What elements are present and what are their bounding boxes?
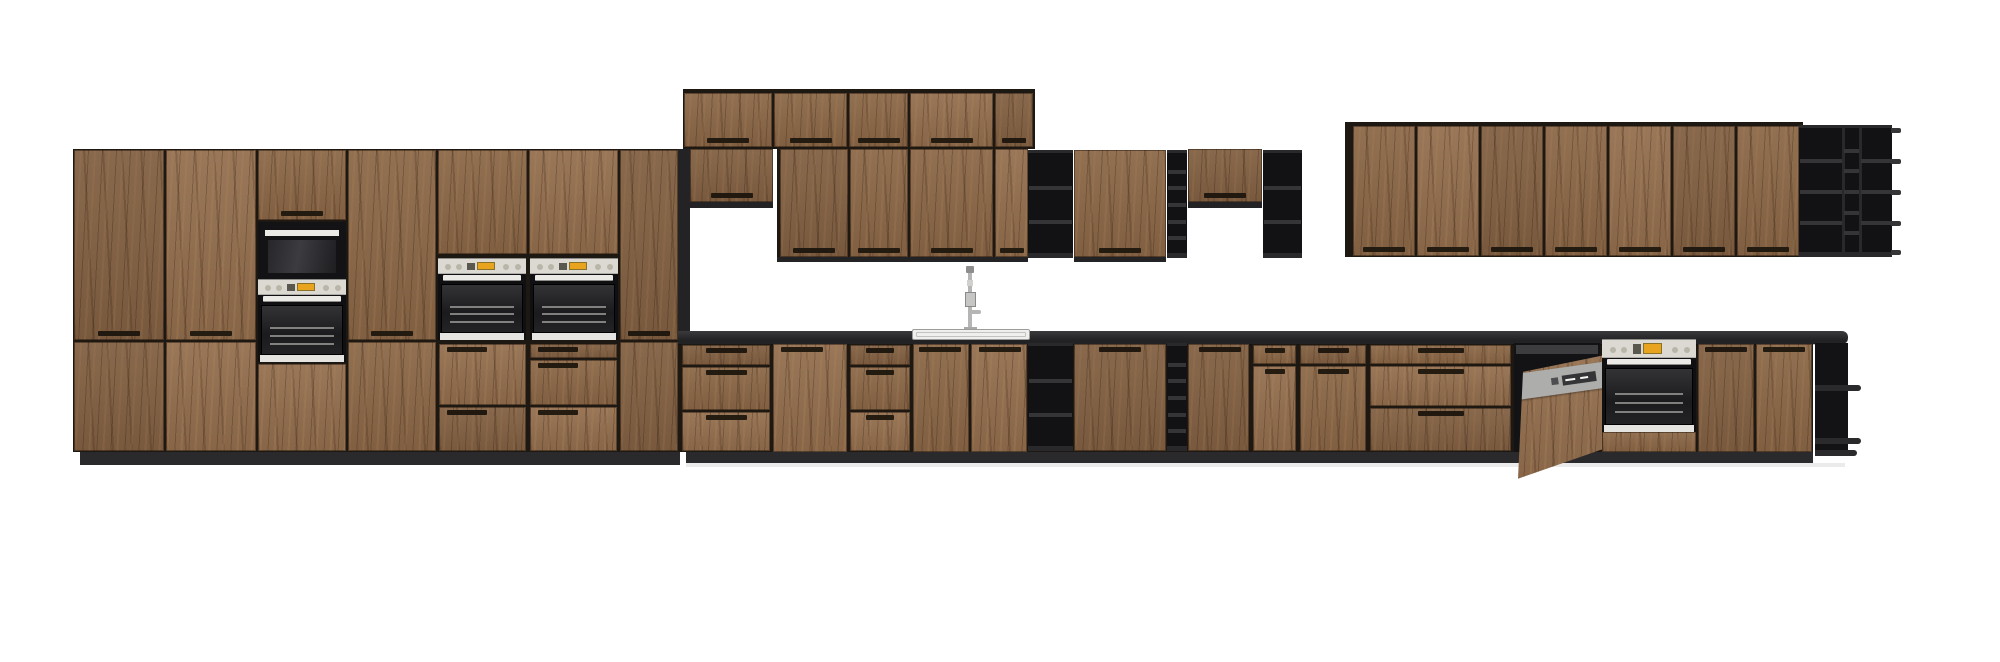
door-handle: [790, 138, 832, 143]
shelf-face: [1168, 170, 1186, 174]
oven-bottom-trim: [260, 355, 344, 362]
shelf-lip: [1815, 450, 1857, 456]
door-handle: [1418, 348, 1464, 353]
upper-cabinet-door[interactable]: [1417, 126, 1479, 256]
base-drawer-unit[interactable]: [1369, 344, 1512, 452]
compact-oven-control-panel: [258, 279, 346, 295]
upper-cabinet-door[interactable]: [1545, 126, 1607, 256]
shelf-face: [1800, 159, 1842, 163]
control-button: [1633, 344, 1641, 354]
door-handle: [1763, 347, 1805, 352]
upper-cabinet-door[interactable]: [774, 93, 847, 147]
shelf-face: [1800, 190, 1842, 194]
shelf-face: [1168, 220, 1186, 224]
upper-cabinet-door[interactable]: [995, 93, 1033, 147]
shelf-lip: [1891, 250, 1901, 255]
base-drawer-unit[interactable]: [681, 344, 771, 452]
shelf-lip: [1891, 221, 1901, 226]
control-button: [559, 263, 567, 270]
upper-cabinet-door[interactable]: [849, 93, 908, 147]
base-cabinet-door[interactable]: [1756, 344, 1812, 452]
oven-door-glass: [261, 305, 343, 355]
shelf-frame-top: [1028, 150, 1073, 153]
dishwasher-display: [1562, 371, 1597, 386]
shelf-face: [1800, 221, 1842, 225]
sink-base-door[interactable]: [913, 344, 969, 452]
door-handle: [931, 248, 973, 253]
upper-cabinet-door[interactable]: [1673, 126, 1735, 256]
shelf-frame-top: [1028, 343, 1073, 346]
oven-rack: [450, 321, 514, 323]
microwave-glass: [268, 240, 336, 273]
drawer-front[interactable]: [1300, 366, 1366, 451]
door-handle: [793, 248, 835, 253]
door-handle: [1002, 138, 1026, 143]
shelf-frame-bottom: [1799, 252, 1892, 257]
door-handle: [858, 138, 900, 143]
door-handle: [858, 248, 900, 253]
door-handle: [706, 370, 747, 375]
oven-door-glass: [441, 284, 523, 333]
door-handle: [1000, 248, 1024, 253]
door-handle: [1705, 347, 1747, 352]
shelf-frame-bottom: [1167, 253, 1187, 258]
shelf-face: [1844, 231, 1859, 235]
pantry-door-lower[interactable]: [348, 342, 436, 451]
shelf-face: [1264, 186, 1301, 190]
oven-display: [1643, 343, 1662, 354]
shelf-frame-top: [1167, 343, 1187, 346]
wall-oven-left[interactable]: [438, 274, 526, 340]
door-handle: [1363, 247, 1405, 252]
shelf-frame-bottom: [1263, 253, 1302, 258]
drawer-front[interactable]: [1253, 345, 1296, 364]
oven-display: [569, 262, 587, 270]
upper-cabinet-door[interactable]: [910, 93, 993, 147]
door-handle: [706, 415, 747, 420]
drawer-front[interactable]: [530, 344, 617, 358]
oven-control-panel: [1602, 339, 1696, 358]
appliance-column-bottom-door[interactable]: [258, 364, 346, 451]
oven-column-top-door[interactable]: [529, 150, 618, 254]
control-button: [467, 263, 475, 270]
upper-cabinet-door[interactable]: [995, 149, 1028, 257]
shelf-face: [1029, 413, 1072, 417]
upper-cabinet-door[interactable]: [1353, 126, 1415, 256]
drawer-over-door-unit[interactable]: [1299, 344, 1367, 452]
pantry-door[interactable]: [74, 150, 164, 340]
oven-handle-bar: [263, 296, 341, 302]
drawer-front[interactable]: [850, 345, 910, 365]
tall-run-side-panel: [678, 149, 690, 343]
dishwasher-tub-edge: [1516, 345, 1598, 354]
upper-cabinet-door[interactable]: [780, 149, 848, 257]
control-knob-icon: [323, 285, 329, 291]
drawer-front[interactable]: [682, 412, 770, 451]
control-knob-icon: [1684, 347, 1690, 353]
oven-base-drawers[interactable]: [438, 343, 527, 452]
shelf-face: [1168, 203, 1186, 207]
control-knob-icon: [335, 285, 341, 291]
door-handle: [447, 410, 487, 415]
shelf-face: [1029, 220, 1072, 224]
drawer-front[interactable]: [1370, 366, 1511, 406]
base-cabinet-door[interactable]: [1074, 344, 1166, 451]
dishwasher-display-text: [1565, 378, 1575, 381]
door-handle: [538, 347, 578, 352]
door-handle: [706, 348, 747, 353]
sink-base-door[interactable]: [971, 344, 1027, 452]
dishwasher-button: [1551, 377, 1559, 385]
pantry-door-lower[interactable]: [74, 342, 164, 451]
sink-basin-line: [916, 332, 1026, 337]
door-handle: [1265, 369, 1285, 374]
door-handle: [931, 138, 973, 143]
upper-cabinet-door[interactable]: [910, 149, 993, 257]
drawer-front[interactable]: [439, 344, 526, 405]
door-handle: [1318, 369, 1349, 374]
door-handle: [1683, 247, 1725, 252]
shelf-frame-top: [1799, 125, 1892, 128]
oven-rack: [542, 321, 606, 323]
wine-shelf-column[interactable]: [1167, 150, 1187, 258]
dishwasher-display-text: [1580, 376, 1588, 379]
oven-door-glass: [1605, 368, 1693, 425]
pantry-door[interactable]: [166, 150, 256, 340]
oven-handle-bar: [535, 275, 613, 281]
shelf-face: [1861, 221, 1891, 225]
door-handle: [866, 415, 894, 420]
door-handle: [190, 331, 232, 336]
door-handle: [1099, 248, 1141, 253]
open-shelf-unit[interactable]: [1028, 150, 1073, 258]
faucet-body: [965, 292, 976, 307]
dishwasher-semi-integrated[interactable]: [1514, 343, 1600, 452]
door-handle: [1099, 347, 1141, 352]
base-cabinet-door[interactable]: [1188, 344, 1249, 451]
faucet-top-cap: [966, 266, 974, 273]
oven-rack: [270, 343, 334, 345]
upper-cabinet-door[interactable]: [1609, 126, 1671, 256]
shelf-face: [1844, 190, 1859, 194]
pantry-door-lower[interactable]: [620, 342, 678, 451]
oven-base-drawers[interactable]: [529, 343, 618, 452]
wall-oven-control-panel: [438, 258, 526, 274]
control-knob-icon: [537, 264, 543, 270]
pantry-door[interactable]: [348, 150, 436, 340]
door-handle: [866, 348, 894, 353]
shelf-frame-top: [1167, 150, 1187, 153]
shelf-face: [1861, 159, 1891, 163]
door-handle: [1427, 247, 1469, 252]
shelf-face: [1029, 379, 1072, 383]
control-knob-icon: [1621, 347, 1627, 353]
door-handle: [98, 331, 140, 336]
upper-cabinet-door-short[interactable]: [1188, 149, 1262, 202]
control-knob-icon: [1610, 347, 1616, 353]
door-handle: [711, 193, 753, 198]
control-knob-icon: [445, 264, 451, 270]
shelf-lip: [1815, 438, 1861, 444]
upper-cabinet-door[interactable]: [1481, 126, 1543, 256]
appliance-column-top-door[interactable]: [258, 150, 346, 220]
toe-kick-left: [80, 452, 680, 465]
cabinet-bottom-edge: [690, 202, 773, 208]
door-handle: [447, 347, 487, 352]
door-handle: [538, 410, 578, 415]
door-handle: [1204, 193, 1246, 198]
shelf-face: [1168, 396, 1186, 400]
drawer-front[interactable]: [530, 360, 617, 405]
shelf-face: [1168, 413, 1186, 417]
shelf-face: [1168, 236, 1186, 240]
drawer-front[interactable]: [530, 407, 617, 451]
oven-handle-bar: [1607, 359, 1691, 365]
control-knob-icon: [503, 264, 509, 270]
drawer-front[interactable]: [850, 412, 910, 451]
control-knob-icon: [456, 264, 462, 270]
upper-cabinet-door[interactable]: [684, 93, 772, 147]
drawer-front[interactable]: [850, 367, 910, 410]
oven-bottom-trim: [440, 333, 524, 340]
oven-door-glass: [533, 284, 615, 333]
wine-shelf-column[interactable]: [1167, 343, 1187, 451]
door-handle: [1418, 369, 1464, 374]
oven-rack: [542, 306, 606, 308]
oven-rack: [542, 313, 606, 315]
door-handle: [1747, 247, 1789, 252]
base-cabinet-door[interactable]: [773, 344, 847, 452]
door-handle: [628, 331, 670, 336]
shelf-face: [1844, 169, 1859, 173]
door-handle: [1265, 348, 1285, 353]
wall-oven-right[interactable]: [530, 274, 618, 340]
cabinet-bottom-edge: [777, 257, 1028, 262]
door-handle: [919, 347, 961, 352]
control-knob-icon: [515, 264, 521, 270]
oven-rack: [1615, 411, 1684, 413]
oven-rack: [450, 313, 514, 315]
oven-rack: [1615, 393, 1684, 395]
shelf-face: [1168, 363, 1186, 367]
faucet-spout: [971, 310, 981, 314]
shelf-face: [1168, 429, 1186, 433]
toe-kick-right: [686, 452, 1813, 463]
floor-shadow: [686, 463, 1845, 467]
oven-display: [297, 283, 315, 291]
shelf-face: [1264, 220, 1301, 224]
base-drawer-unit[interactable]: [849, 344, 911, 452]
sink-rim[interactable]: [912, 329, 1030, 340]
cabinet-bottom-edge: [1074, 257, 1166, 262]
faucet-joint: [967, 280, 973, 286]
oven-column-top-door[interactable]: [438, 150, 527, 254]
shelf-face: [1168, 186, 1186, 190]
oven-base-filler[interactable]: [1602, 432, 1696, 452]
drawer-front[interactable]: [439, 407, 526, 451]
control-knob-icon: [1672, 347, 1678, 353]
shelf-frame-bottom: [1028, 446, 1073, 451]
door-handle: [707, 138, 749, 143]
drawer-front[interactable]: [1370, 408, 1511, 451]
door-handle: [1418, 411, 1464, 416]
kitchen-elevation: [0, 0, 2000, 662]
upper-cabinet-door[interactable]: [1737, 126, 1799, 256]
shelf-face: [1029, 186, 1072, 190]
open-shelf-unit[interactable]: [1799, 125, 1892, 257]
door-handle: [1555, 247, 1597, 252]
oven-rack: [450, 306, 514, 308]
shelf-lip: [1891, 190, 1901, 195]
microwave-handle-bar: [265, 230, 339, 236]
door-handle: [1491, 247, 1533, 252]
door-handle: [281, 211, 323, 216]
faucet[interactable]: [958, 266, 984, 332]
open-shelf-unit[interactable]: [1263, 150, 1302, 258]
door-handle: [1318, 348, 1349, 353]
shelf-face: [1168, 379, 1186, 383]
door-handle: [979, 347, 1021, 352]
drawer-front[interactable]: [1370, 345, 1511, 364]
drawer-front[interactable]: [682, 345, 770, 365]
shelf-face: [1844, 149, 1859, 153]
door-handle: [781, 347, 823, 352]
shelf-frame-bottom: [1167, 446, 1187, 451]
oven-display: [477, 262, 495, 270]
cabinet-bottom-edge: [1188, 202, 1262, 208]
control-knob-icon: [265, 285, 271, 291]
door-handle: [1199, 347, 1241, 352]
oven-bottom-trim: [1604, 425, 1694, 432]
pantry-door-lower[interactable]: [166, 342, 256, 451]
base-cabinet-door[interactable]: [1698, 344, 1754, 452]
oven-bottom-trim: [532, 333, 616, 340]
built-in-oven[interactable]: [1602, 358, 1696, 432]
control-knob-icon: [276, 285, 282, 291]
oven-rack: [270, 335, 334, 337]
shelf-lip: [1891, 128, 1901, 133]
shelf-frame-bottom: [1028, 253, 1073, 258]
upper-cabinet-door[interactable]: [1074, 150, 1166, 257]
oven-rack: [270, 327, 334, 329]
shelf-lip: [1815, 385, 1861, 391]
drawer-front[interactable]: [1300, 345, 1366, 364]
upper-cabinet-door[interactable]: [850, 149, 908, 257]
drawer-front[interactable]: [682, 367, 770, 410]
shelf-frame-top: [1263, 150, 1302, 153]
door-handle: [371, 331, 413, 336]
shelf-lip: [1891, 159, 1901, 164]
control-knob-icon: [607, 264, 613, 270]
built-in-compact-oven[interactable]: [258, 222, 346, 279]
built-in-oven-upper[interactable]: [258, 295, 346, 362]
wall-oven-control-panel: [530, 258, 618, 274]
drawer-over-door-unit[interactable]: [1252, 344, 1297, 452]
door-handle: [866, 370, 894, 375]
oven-handle-bar: [443, 275, 521, 281]
control-button: [287, 284, 295, 291]
pantry-door[interactable]: [620, 150, 678, 340]
control-knob-icon: [595, 264, 601, 270]
drawer-front[interactable]: [1253, 366, 1296, 451]
control-knob-icon: [548, 264, 554, 270]
oven-rack: [1615, 402, 1684, 404]
door-handle: [1619, 247, 1661, 252]
door-handle: [538, 363, 578, 368]
open-shelf-unit[interactable]: [1028, 343, 1073, 451]
upper-cabinet-door-short[interactable]: [690, 149, 773, 202]
shelf-face: [1844, 211, 1859, 215]
shelf-face: [1861, 190, 1891, 194]
open-end-shelf[interactable]: [1815, 343, 1848, 456]
